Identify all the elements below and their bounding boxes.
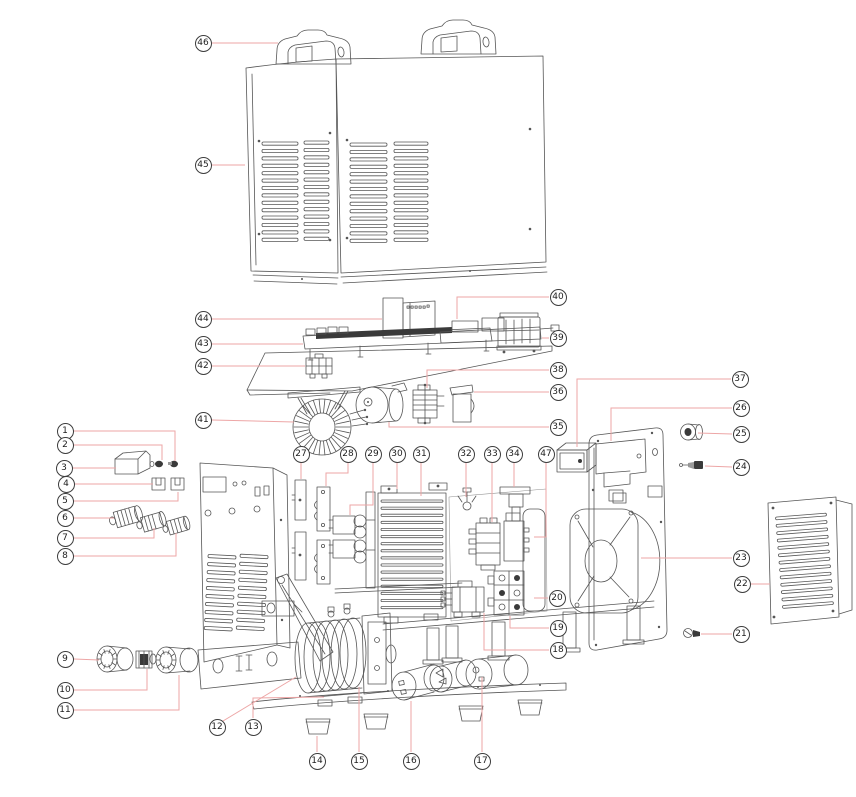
callout-balloon-13: 13 [245,719,262,736]
callout-balloon-22: 22 [734,576,751,593]
leader-line-13 [253,697,324,718]
leader-line-19 [510,616,549,628]
leader-line-41 [212,420,294,422]
callout-balloon-26: 26 [733,400,750,417]
callout-balloon-15: 15 [351,753,368,770]
leader-line-18 [484,613,549,650]
callout-balloon-32: 32 [458,446,475,463]
leader-line-40 [457,297,549,319]
callout-balloon-38: 38 [550,362,567,379]
callout-balloon-42: 42 [195,358,212,375]
callout-balloon-31: 31 [413,446,430,463]
callout-balloon-3: 3 [56,460,73,477]
leader-line-1 [74,431,175,461]
callout-balloon-18: 18 [550,642,567,659]
callout-balloon-43: 43 [195,336,212,353]
leader-line-5 [74,492,178,501]
callout-balloon-4: 4 [58,476,75,493]
callout-balloon-17: 17 [474,753,491,770]
leader-line-28 [326,463,348,486]
callout-balloon-10: 10 [57,682,74,699]
callout-balloon-37: 37 [732,371,749,388]
leader-line-12 [223,677,296,721]
leader-line-8 [74,533,176,556]
callout-balloon-16: 16 [403,753,420,770]
leader-line-24 [705,466,732,467]
callout-balloon-46: 46 [195,35,212,52]
callout-balloon-20: 20 [549,590,566,607]
callout-balloon-36: 36 [550,384,567,401]
leader-line-11 [74,675,179,710]
callout-balloon-40: 40 [550,289,567,306]
leader-line-37 [577,379,731,447]
callout-balloon-25: 25 [733,426,750,443]
callout-balloon-12: 12 [209,719,226,736]
callout-balloon-8: 8 [57,548,74,565]
callout-balloon-6: 6 [57,510,74,527]
leader-line-2 [74,445,162,460]
leader-line-10 [74,669,147,690]
callout-balloon-34: 34 [506,446,523,463]
leader-line-layer [0,0,856,797]
callout-balloon-30: 30 [389,446,406,463]
leader-line-26 [611,408,732,441]
callout-balloon-14: 14 [309,753,326,770]
callout-balloon-28: 28 [340,446,357,463]
callout-balloon-24: 24 [733,459,750,476]
leader-line-35 [389,422,549,427]
exploded-parts-diagram: 1234567891011121314151617181920212223242… [0,0,856,797]
callout-balloon-5: 5 [57,493,74,510]
leader-line-29 [350,463,373,515]
callout-balloon-2: 2 [57,437,74,454]
callout-balloon-23: 23 [733,550,750,567]
callout-balloon-45: 45 [195,157,212,174]
callout-balloon-39: 39 [550,330,567,347]
callout-balloon-47: 47 [538,446,555,463]
callout-balloon-44: 44 [195,311,212,328]
leader-line-7 [74,528,154,538]
callout-balloon-33: 33 [484,446,501,463]
callout-balloon-19: 19 [550,620,567,637]
leader-line-47 [534,463,546,537]
callout-balloon-41: 41 [195,412,212,429]
leader-line-9 [74,659,99,660]
callout-balloon-29: 29 [365,446,382,463]
callout-balloon-9: 9 [57,651,74,668]
callout-balloon-27: 27 [293,446,310,463]
callout-balloon-7: 7 [57,530,74,547]
callout-balloon-11: 11 [57,702,74,719]
callout-balloon-35: 35 [550,419,567,436]
leader-line-38 [427,370,549,388]
callout-balloon-21: 21 [733,626,750,643]
leader-line-25 [698,433,732,434]
